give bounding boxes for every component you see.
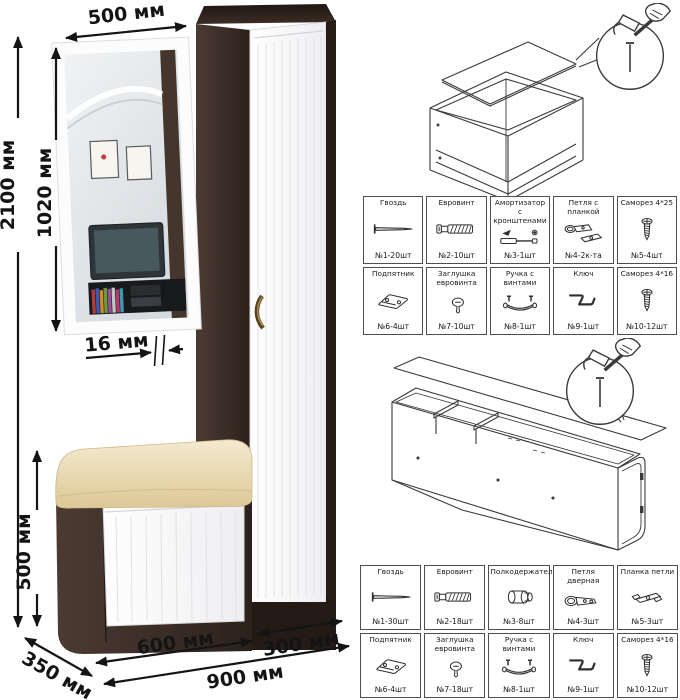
key-icon [561, 645, 605, 685]
nail-icon [371, 208, 415, 251]
hardware-item: Ключ №9-1шт [553, 267, 613, 335]
hardware-item-qty: №10-12шт [627, 685, 668, 694]
dim-mirror-height-label: 1020 мм [34, 148, 56, 239]
hardware-item: Гвоздь №1-30шт [360, 565, 421, 630]
hardware-item: Ключ №9-1шт [553, 633, 614, 698]
hardware-item: Подпятник №6-4шт [360, 633, 421, 698]
hardware-item-qty: №5-4шт [631, 251, 663, 260]
hardware-item-qty: №9-1шт [567, 685, 599, 694]
hardware-item-qty: №4-2к-та [565, 251, 602, 260]
euro-screw-icon [435, 208, 479, 251]
nail-icon [369, 577, 413, 617]
bench-cushion [56, 440, 252, 508]
hardware-table-top: Гвоздь №1-20шт Евровинт №2-10шт Амортиза… [363, 196, 677, 335]
hardware-item: Заглушка евровинта №7-18шт [424, 633, 485, 698]
hinge-plate-icon [625, 577, 669, 617]
hardware-item-name: Заглушка евровинта [428, 270, 484, 288]
hardware-item-name: Саморез 4*16 [619, 270, 675, 279]
furniture-rendering: 2100 мм 1020 мм 500 мм 16 мм 500 мм 350 … [0, 0, 360, 700]
cap-icon [433, 654, 477, 686]
hardware-item: Ручка с винтами №8-1шт [488, 633, 549, 698]
screw-icon [625, 208, 669, 251]
hardware-item-qty: №7-10шт [438, 322, 475, 331]
hardware-item-name: Заглушка евровинта [426, 636, 483, 654]
reflected-picture-2 [126, 146, 151, 180]
hardware-item-qty: №3-1шт [504, 251, 536, 260]
dim-mirror-width-label: 500 мм [87, 0, 166, 29]
dim-bench-height-label: 500 мм [13, 513, 35, 590]
hardware-item: Заглушка евровинта №7-10шт [426, 267, 486, 335]
hardware-item: Саморез 4*25 №5-4шт [617, 196, 677, 264]
hardware-item-qty: №5-3шт [632, 617, 664, 626]
hardware-item-name: Саморез 4*16 [619, 636, 676, 645]
hardware-item-qty: №8-1шт [503, 685, 535, 694]
hardware-item-qty: №2-10шт [438, 251, 475, 260]
bench-door[interactable] [103, 497, 244, 626]
hardware-item: Евровинт №2-18шт [424, 565, 485, 630]
hardware-item: Петля дверная №4-3шт [553, 565, 614, 630]
bench-carcass-wireframe [430, 72, 583, 196]
hardware-item: Евровинт №2-10шт [426, 196, 486, 264]
hardware-item-qty: №2-18шт [437, 617, 474, 626]
hardware-item: Гвоздь №1-20шт [363, 196, 423, 264]
gas-lift-icon [498, 225, 542, 251]
hardware-item-name: Евровинт [428, 199, 484, 208]
hardware-table-bottom: Гвоздь №1-30шт Евровинт №2-18шт Полкодер… [360, 565, 678, 698]
assembly-instruction-sheet: 2100 мм 1020 мм 500 мм 16 мм 500 мм 350 … [0, 0, 680, 700]
hardware-item-qty: №3-8шт [503, 617, 535, 626]
hardware-item-name: Петля дверная [555, 568, 612, 586]
hardware-item-name: Ручка с винтами [492, 270, 548, 288]
hardware-item-name: Подпятник [365, 270, 421, 279]
assembly-diagram-bench [378, 0, 680, 196]
handle-icon [497, 654, 541, 686]
hardware-item: Амортизатор с кронштенами №3-1шт [490, 196, 550, 264]
hardware-item-qty: №1-30шт [372, 617, 409, 626]
hardware-item-name: Ключ [555, 270, 611, 279]
key-icon [561, 279, 605, 322]
hardware-item: Саморез 4*16 №10-12шт [617, 267, 677, 335]
foot-pad-icon [369, 645, 413, 685]
hardware-item: Подпятник №6-4шт [363, 267, 423, 335]
hinge-with-plate-icon [561, 217, 605, 252]
hardware-item-qty: №4-3шт [567, 617, 599, 626]
dim-mirror-width [66, 26, 186, 38]
hardware-item-qty: №8-1шт [504, 322, 536, 331]
hardware-item-name: Планка петли [619, 568, 676, 577]
assembly-diagram-wardrobe [378, 338, 680, 565]
hardware-item-qty: №7-18шт [437, 685, 474, 694]
wall-mirror [52, 37, 202, 335]
hardware-item: Петля с планкой №4-2к-та [553, 196, 613, 264]
shelf-support-icon [497, 577, 541, 617]
hammer-callout [597, 3, 671, 89]
hardware-item-name: Полкодержатель [490, 568, 547, 577]
hardware-item-name: Подпятник [362, 636, 419, 645]
hammer-callout [567, 338, 641, 424]
dim-overall-height-label: 2100 мм [0, 140, 19, 231]
hardware-item-name: Ключ [555, 636, 612, 645]
hardware-item: Полкодержатель №3-8шт [488, 565, 549, 630]
hardware-item: Планка петли №5-3шт [617, 565, 678, 630]
hardware-item-name: Саморез 4*25 [619, 199, 675, 208]
screw-icon [625, 645, 669, 685]
door-hinge-icon [561, 586, 605, 618]
hardware-item-qty: №1-20шт [375, 251, 412, 260]
hardware-item: Саморез 4*16 №10-12шт [617, 633, 678, 698]
hardware-item-qty: №9-1шт [568, 322, 600, 331]
shoe-bench [56, 440, 252, 654]
hardware-item-qty: №10-12шт [626, 322, 667, 331]
hardware-item-qty: №6-4шт [375, 685, 407, 694]
foot-pad-icon [371, 279, 415, 322]
hardware-item-name: Амортизатор с кронштенами [492, 199, 548, 225]
hardware-item-name: Ручка с винтами [490, 636, 547, 654]
hardware-item-name: Евровинт [426, 568, 483, 577]
hardware-item: Ручка с винтами №8-1шт [490, 267, 550, 335]
hardware-item-name: Гвоздь [365, 199, 421, 208]
euro-screw-icon [433, 577, 477, 617]
cap-icon [435, 288, 479, 323]
handle-icon [498, 288, 542, 323]
hardware-item-qty: №6-4шт [377, 322, 409, 331]
hardware-item-name: Гвоздь [362, 568, 419, 577]
hardware-item-name: Петля с планкой [555, 199, 611, 217]
screw-icon [625, 279, 669, 322]
